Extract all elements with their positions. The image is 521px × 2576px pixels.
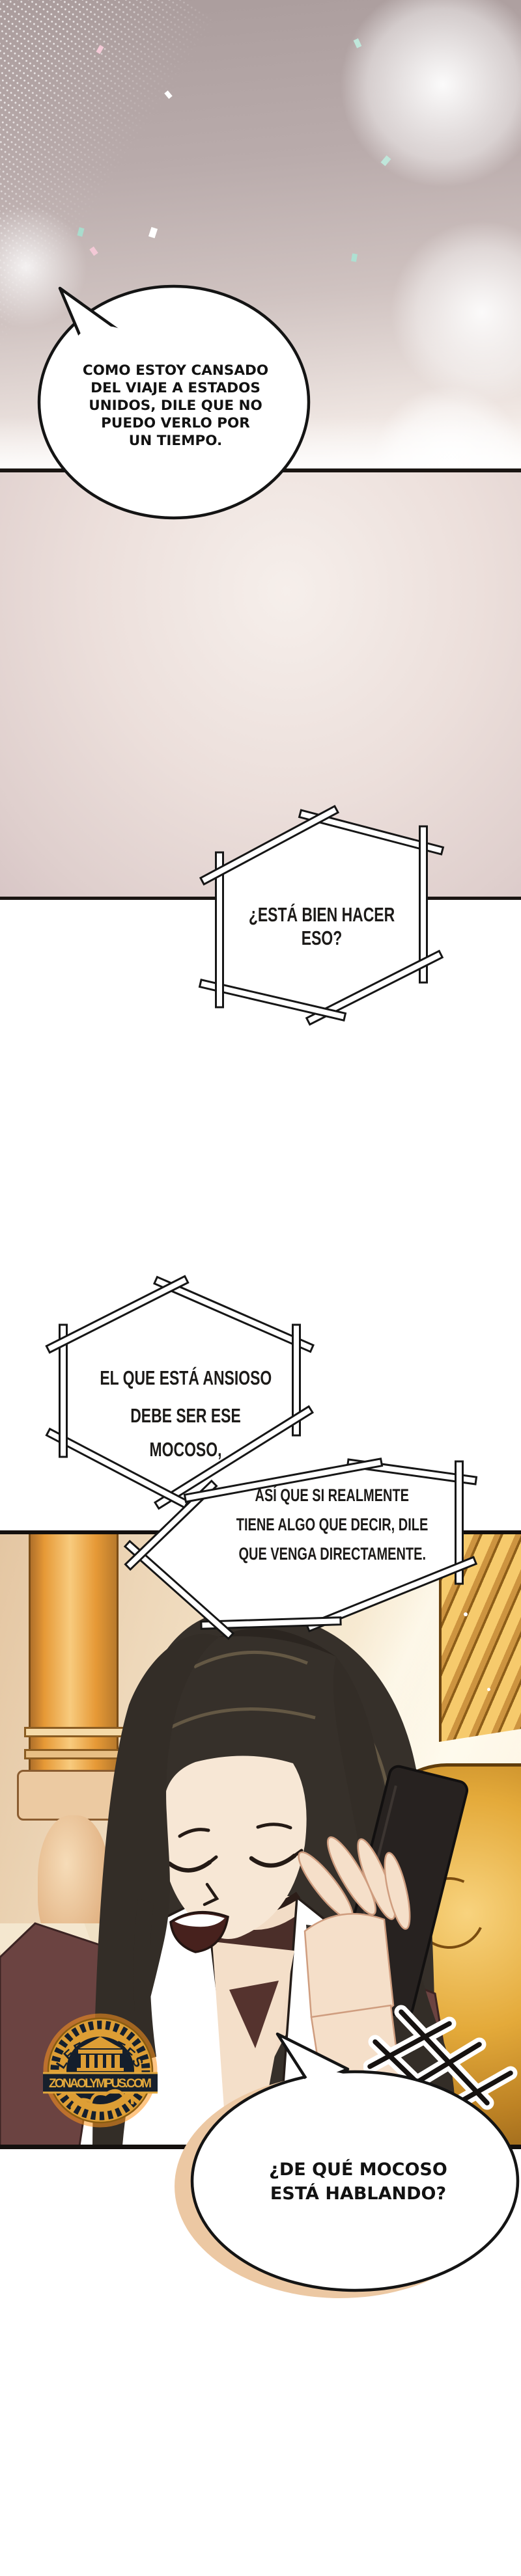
bubble-line: UN TIEMPO. (73, 432, 278, 450)
radio-bubble-1-text: ¿ESTÁ BIEN HACER ESO? (217, 903, 427, 950)
confetti-piece (351, 253, 358, 262)
bubble-line: COMO ESTOY CANSADO (73, 362, 278, 379)
firework-glow (306, 0, 521, 221)
speech-bubble-phone-text: COMO ESTOY CANSADO DEL VIAJE A ESTADOS U… (73, 362, 278, 450)
bubble-line: PUEDO VERLO POR (73, 414, 278, 432)
bubble-line: ESTÁ HABLANDO? (251, 2182, 466, 2206)
comic-page: ASUNTO: SOBRE EL CAZADOR JEON MIN-CHEOL,… (0, 0, 521, 2576)
watermark-site-text: ZONAOLYMPUS.COM (49, 2077, 152, 2091)
bubble-line: DEL VIAJE A ESTADOS (73, 379, 278, 397)
radio-bubble-3-text: ASÍ QUE SI REALMENTE TIENE ALGO QUE DECI… (202, 1482, 462, 1570)
bubble-line: UNIDOS, DILE QUE NO (73, 397, 278, 414)
bubble-line: ¿DE QUÉ MOCOSO (251, 2158, 466, 2182)
confetti-piece (148, 227, 158, 238)
radio-bubble-2-text: EL QUE ESTÁ ANSIOSO DEBE SER ESE MOCOSO, (62, 1361, 309, 1471)
watermark-badge: LEE ANTES ZONAOLYMPUS.COM (43, 2013, 158, 2128)
speech-bubble-woman-text: ¿DE QUÉ MOCOSO ESTÁ HABLANDO? (251, 2158, 466, 2206)
